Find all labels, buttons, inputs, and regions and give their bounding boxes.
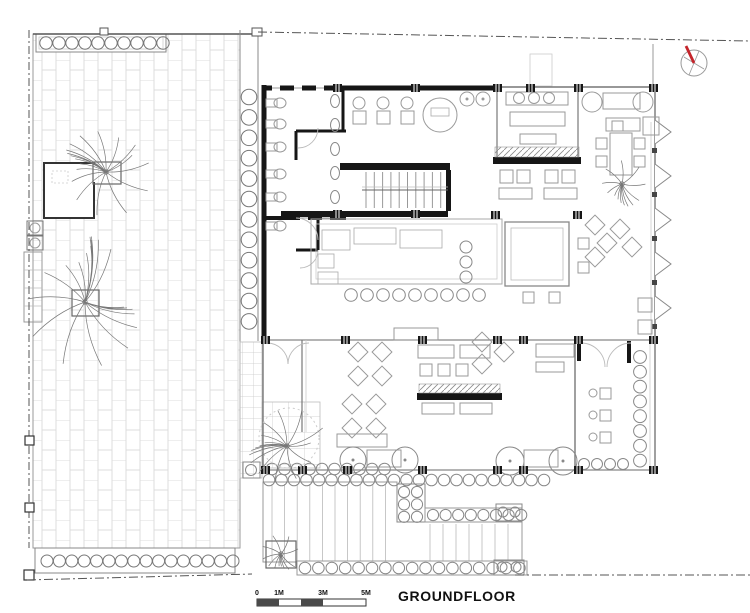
planter-row [634,395,647,408]
scale-label: 0 [255,590,259,597]
column [493,466,502,474]
planter-row [634,425,647,438]
planter-row [241,191,257,207]
column [261,336,270,344]
planter-row [241,212,257,228]
column [333,210,342,218]
column [298,466,307,474]
planter-row [241,150,257,166]
planter-row [426,474,438,486]
planter-row [634,439,647,452]
planter-row [634,380,647,393]
column [574,84,583,92]
planter-row [241,130,257,146]
planter-row [241,293,257,309]
planter-row [538,474,550,486]
planter-row [241,110,257,126]
door-swing [296,218,318,240]
column [649,84,658,92]
stair-wall [340,163,450,170]
folding-door [655,120,671,144]
plan-title: GROUNDFLOOR [398,588,508,604]
planter-row [513,474,525,486]
planter-row [501,474,513,486]
column [418,336,427,344]
column [411,84,420,92]
bench-wall [493,157,581,164]
column [411,210,420,218]
planter-row [463,474,475,486]
column [574,336,583,344]
bar-stools [361,289,374,302]
planter-row [241,89,257,105]
folding-door [655,208,671,232]
folding-door [655,164,671,188]
bar-stools [425,289,438,302]
folding-door [655,252,671,276]
folding-door [655,296,671,320]
water-feature [505,222,569,286]
planter-row [526,474,538,486]
planter-row [634,365,647,378]
dining-table [610,133,632,175]
door-swing [581,343,605,367]
planter-row [379,463,391,475]
planter-row [241,273,257,289]
ground-floor-plan-canvas: 01M3M5M [0,0,750,613]
planter-row [476,474,488,486]
planter-row [241,252,257,268]
garden-structure [44,163,94,218]
bar-stools [473,289,486,302]
column [573,211,582,219]
property-line [258,32,750,41]
floor-plan: 01M3M5M GROUNDFLOOR [0,0,750,613]
bar-stools [377,289,390,302]
planter-row [438,474,450,486]
column [491,211,500,219]
planter-row [316,463,328,475]
column [261,466,270,474]
bar-stools [393,289,406,302]
scale-label: 5M [361,590,371,597]
column [526,84,535,92]
round-table [423,98,457,132]
scale-label: 1M [274,590,284,597]
planter-row [634,351,647,364]
stair-wall [281,211,448,217]
bench-wall [417,393,502,400]
column [519,336,528,344]
planter-row [241,314,257,330]
planter-row [451,474,463,486]
planter-row [634,410,647,423]
column [333,84,342,92]
column [649,466,658,474]
courtyard-paving [33,34,240,548]
door-swing [300,250,318,268]
planter-row [241,232,257,248]
bar-stools [457,289,470,302]
planter-row [366,463,378,475]
bar-stools [409,289,422,302]
planter-row [634,454,647,467]
planter-row [329,463,341,475]
door-swing [267,343,288,364]
column [649,336,658,344]
column [519,466,528,474]
property-line [27,574,252,580]
bar-counter [311,219,502,284]
column [574,466,583,474]
column [418,466,427,474]
column [343,466,352,474]
planter-row [488,474,500,486]
scale-label: 3M [318,590,328,597]
bar-stools [345,289,358,302]
column [341,336,350,344]
column [493,84,502,92]
bar-stools [441,289,454,302]
planter-row [241,171,257,187]
column [493,336,502,344]
